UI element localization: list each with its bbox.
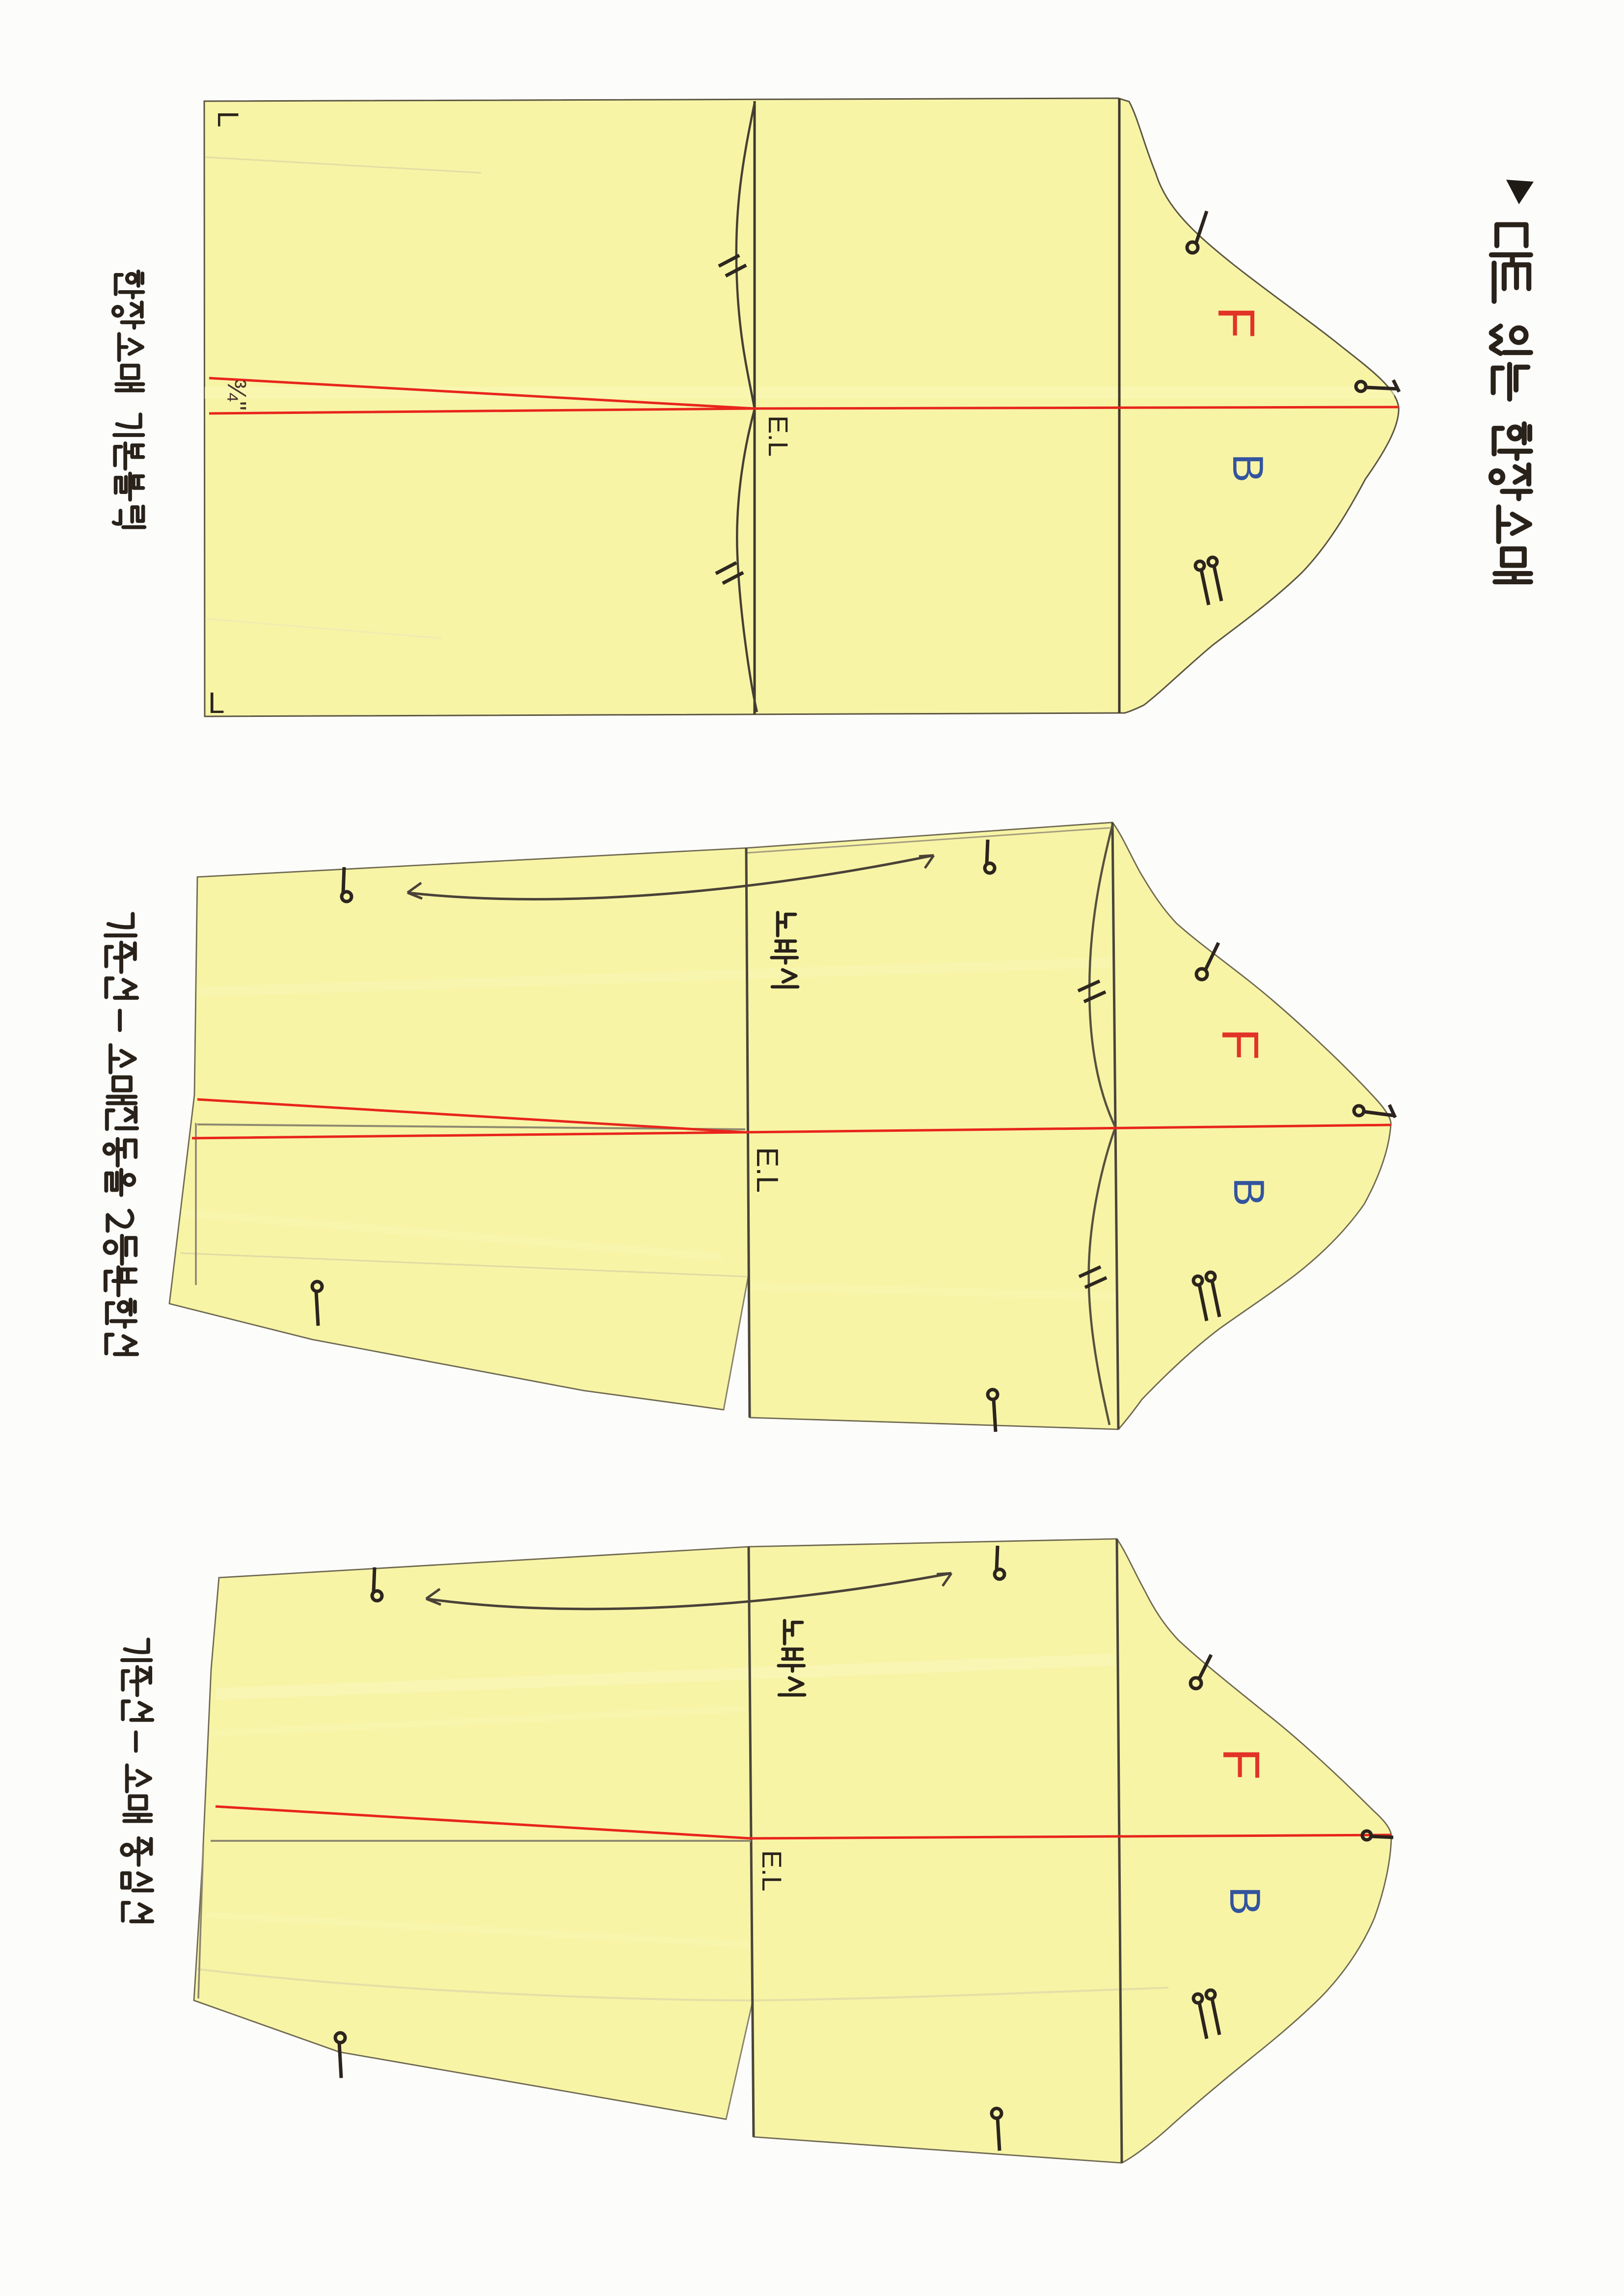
svg-text:E.L: E.L xyxy=(757,1850,787,1891)
svg-text:B: B xyxy=(1221,1886,1270,1915)
svg-text:F: F xyxy=(1207,306,1265,338)
svg-text:B: B xyxy=(1224,454,1272,483)
svg-text:F: F xyxy=(1211,1028,1269,1060)
svg-text:B: B xyxy=(1225,1177,1273,1206)
svg-text:E.L: E.L xyxy=(750,1147,784,1193)
svg-text:F: F xyxy=(1212,1748,1270,1780)
svg-text:L: L xyxy=(208,686,224,719)
svg-text:E.L: E.L xyxy=(763,415,794,457)
svg-text:L: L xyxy=(212,111,244,127)
svg-text:¾": ¾" xyxy=(222,379,251,410)
